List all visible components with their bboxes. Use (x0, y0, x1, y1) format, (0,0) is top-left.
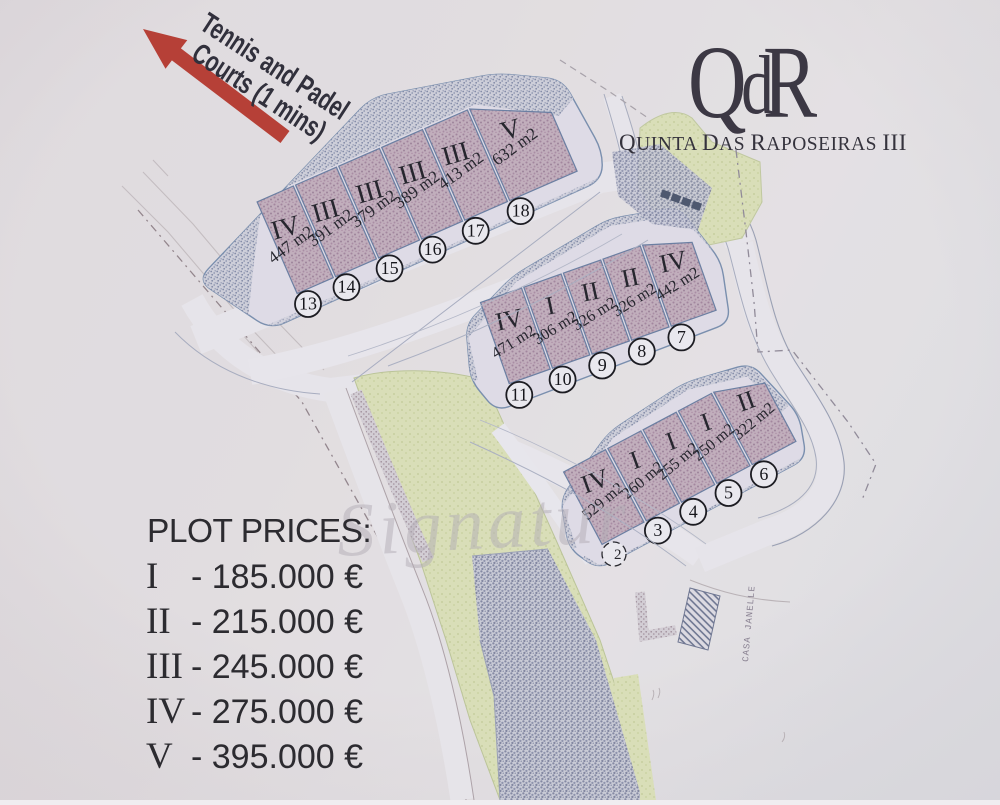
svg-text:13: 13 (299, 294, 317, 314)
svg-text:- 215.000 €: - 215.000 € (191, 603, 363, 641)
svg-text:- 395.000 €: - 395.000 € (191, 738, 363, 776)
svg-text:- 275.000 €: - 275.000 € (191, 693, 363, 731)
svg-text:III: III (146, 646, 183, 687)
svg-text:11: 11 (511, 384, 528, 404)
svg-text:II: II (146, 601, 171, 642)
svg-text:I: I (146, 556, 158, 597)
svg-text:- 185.000 €: - 185.000 € (191, 558, 363, 596)
svg-text:14: 14 (338, 277, 356, 297)
svg-text:QUINTA DAS RAPOSEIRAS III: QUINTA DAS RAPOSEIRAS III (619, 130, 907, 155)
svg-text:8: 8 (637, 341, 646, 361)
svg-text:10: 10 (554, 369, 572, 389)
svg-text:6: 6 (759, 464, 768, 484)
svg-text:- 245.000 €: - 245.000 € (191, 648, 363, 686)
svg-text:Signatur: Signatur (334, 474, 632, 573)
svg-text:7: 7 (677, 327, 686, 347)
svg-text:4: 4 (689, 501, 698, 521)
svg-text:PLOT PRICES:: PLOT PRICES: (147, 513, 371, 550)
svg-text:5: 5 (724, 483, 733, 503)
svg-text:3: 3 (653, 520, 662, 540)
svg-text:V: V (146, 736, 173, 777)
svg-text:9: 9 (598, 355, 607, 375)
svg-text:QdR: QdR (688, 26, 818, 141)
svg-text:17: 17 (467, 220, 485, 240)
svg-text:15: 15 (381, 258, 399, 278)
svg-text:18: 18 (512, 201, 530, 221)
svg-text:16: 16 (424, 239, 442, 259)
svg-text:IV: IV (146, 691, 185, 732)
